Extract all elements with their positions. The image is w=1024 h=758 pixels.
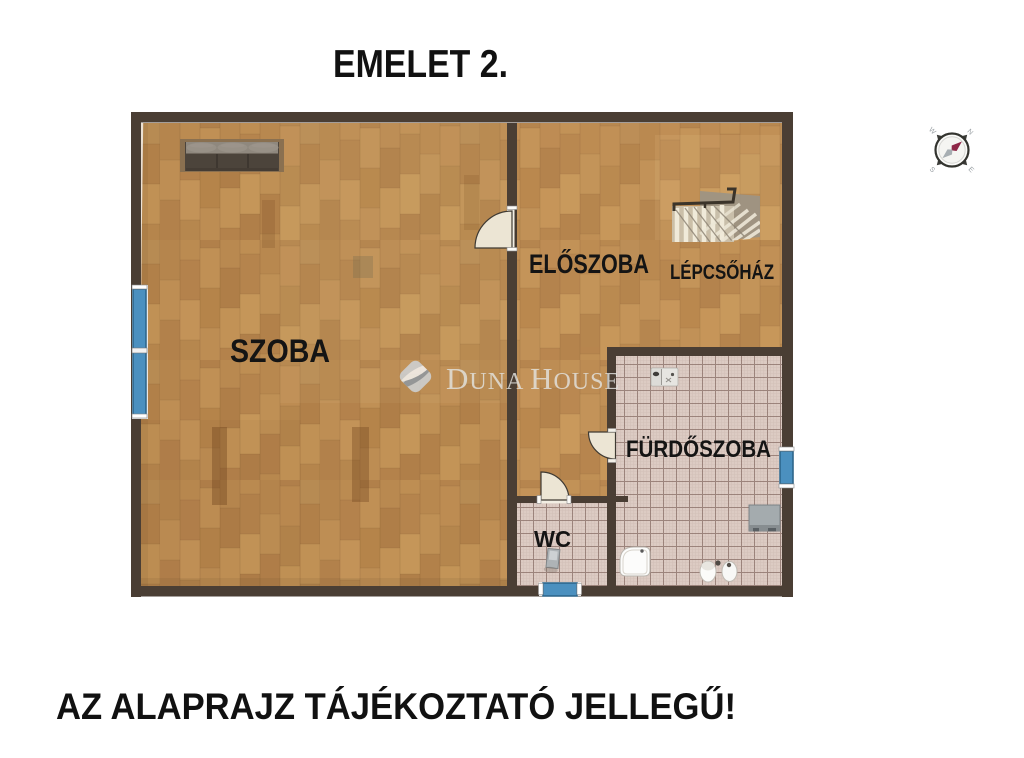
svg-text:S: S xyxy=(928,166,936,174)
svg-text:WC: WC xyxy=(534,526,571,552)
svg-text:SZOBA: SZOBA xyxy=(230,333,330,369)
svg-text:E: E xyxy=(967,166,975,174)
svg-text:FÜRDŐSZOBA: FÜRDŐSZOBA xyxy=(626,435,771,463)
svg-text:AZ ALAPRAJZ TÁJÉKOZTATÓ JELLEG: AZ ALAPRAJZ TÁJÉKOZTATÓ JELLEGŰ! xyxy=(56,685,736,727)
svg-text:W: W xyxy=(927,126,937,136)
svg-text:ELŐSZOBA: ELŐSZOBA xyxy=(529,248,649,279)
svg-text:LÉPCSŐHÁZ: LÉPCSŐHÁZ xyxy=(670,261,774,284)
svg-text:EMELET 2.: EMELET 2. xyxy=(333,43,508,86)
